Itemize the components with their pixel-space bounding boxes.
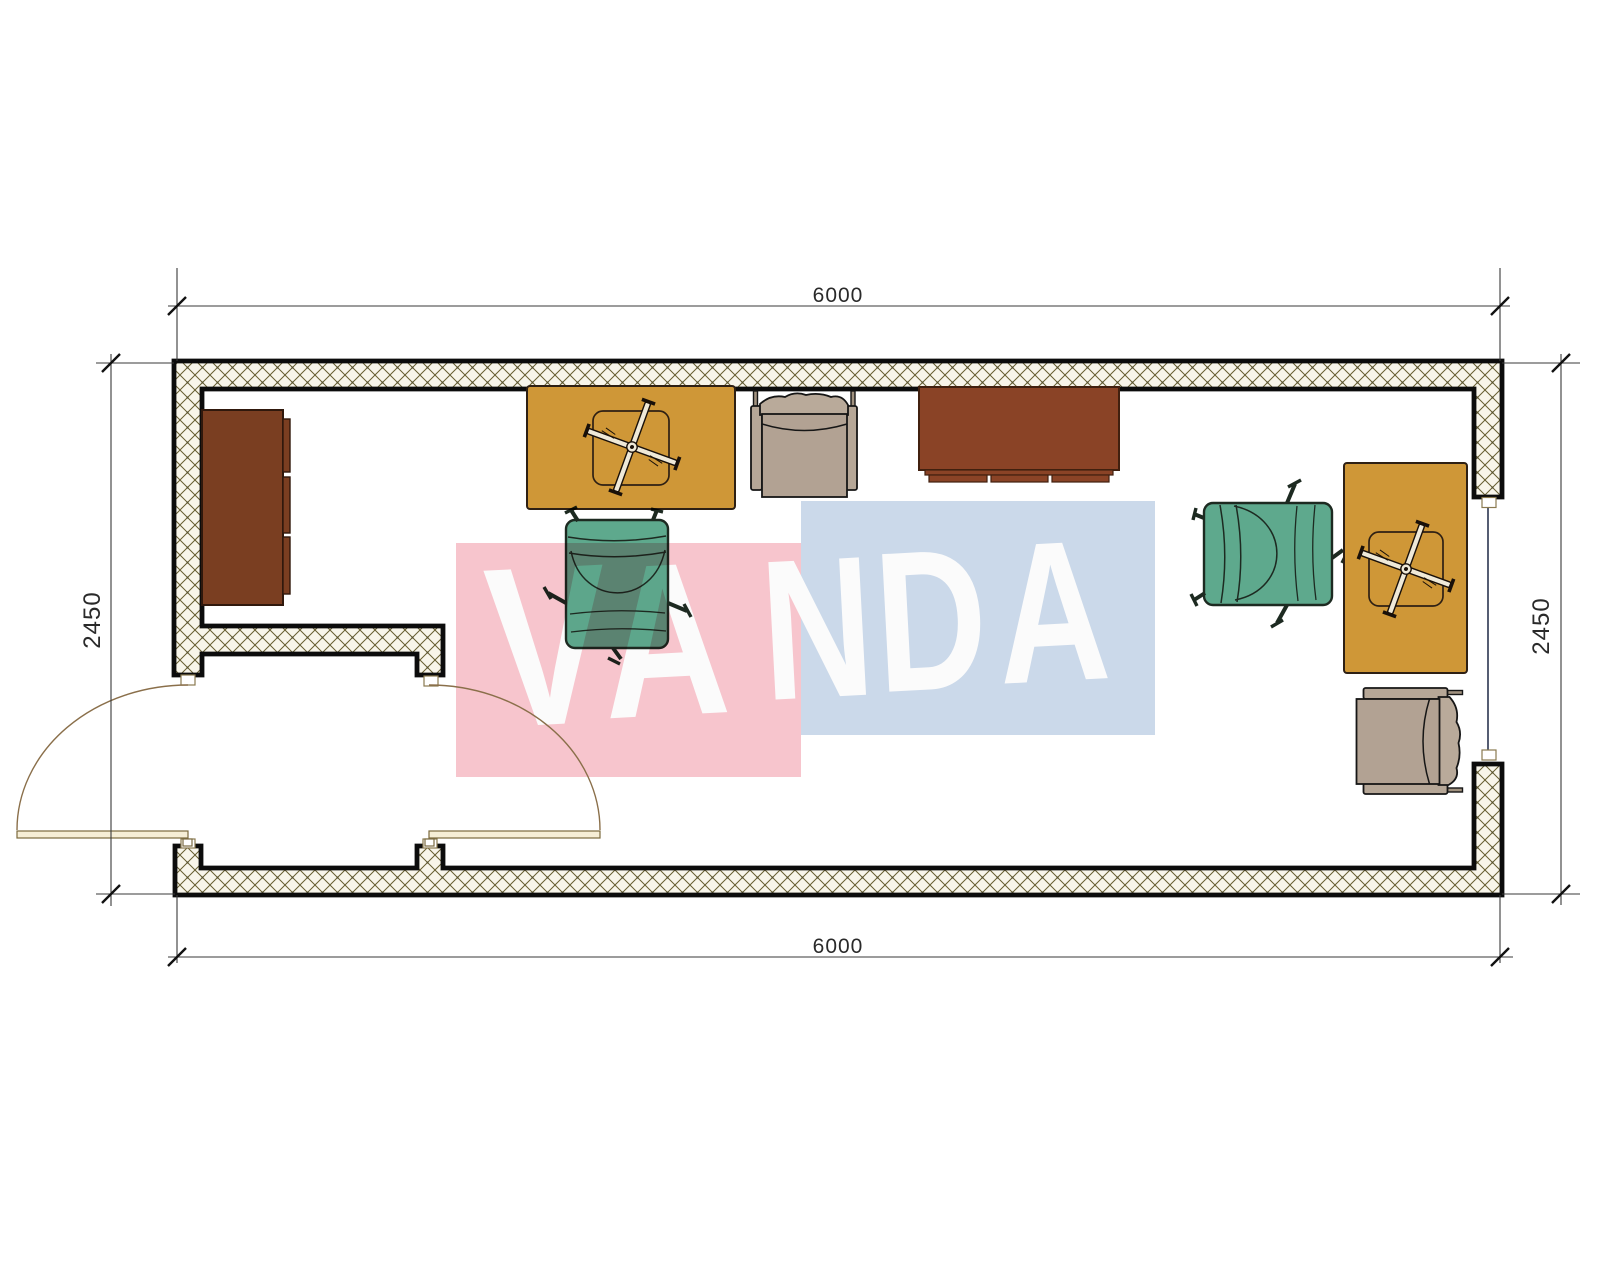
svg-text:2450: 2450 <box>79 591 106 648</box>
svg-text:D: D <box>870 505 993 735</box>
svg-text:A: A <box>991 497 1114 727</box>
svg-text:6000: 6000 <box>813 935 864 958</box>
svg-text:6000: 6000 <box>813 284 864 307</box>
svg-text:N: N <box>756 513 879 743</box>
svg-text:2450: 2450 <box>1528 597 1555 654</box>
